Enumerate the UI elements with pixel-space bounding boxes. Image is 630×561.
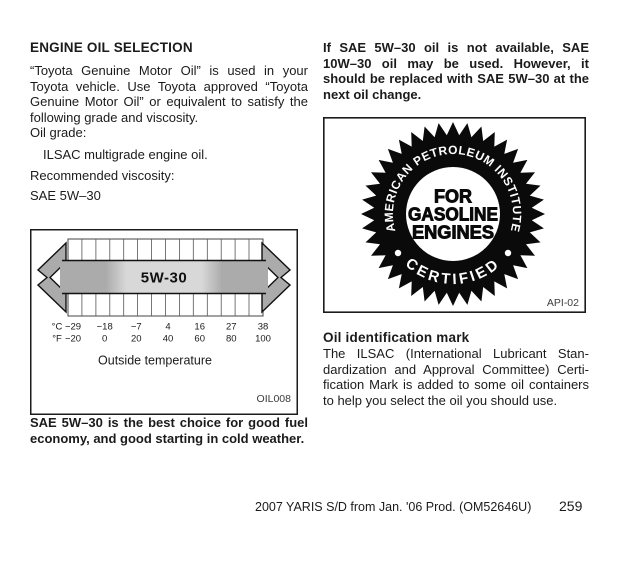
celsius-tick: 38 [258,322,269,333]
fahrenheit-tick: 100 [255,334,271,345]
oil-mark-paragraph: The ILSAC (International Lubricant Stan­… [323,346,589,408]
fahrenheit-prefix: °F [52,334,62,345]
celsius-tick: −7 [131,322,142,333]
seal-line-gasoline: GASOLINE [408,205,498,225]
seal-line-for: FOR [434,187,472,207]
fahrenheit-tick: 40 [163,334,174,345]
fahrenheit-tick: −20 [65,334,81,345]
footer-model-text: 2007 YARIS S/D from Jan. '06 Prod. (OM52… [255,500,531,514]
celsius-tick: 4 [165,322,170,333]
left-column: ENGINE OIL SELECTION “Toyota Genuine Mot… [30,40,308,446]
viscosity-label: Recommended viscosity: [30,168,308,184]
figure-code: OIL008 [257,393,292,405]
seal-dot-right [505,250,511,256]
arrow-label: 5W-30 [141,270,187,287]
alternative-oil-paragraph: If SAE 5W–30 oil is not available, SAE 1… [323,40,589,102]
note-paragraph: SAE 5W–30 is the best choice for good fu… [30,415,308,446]
celsius-tick: 16 [194,322,205,333]
celsius-tick: 27 [226,322,237,333]
fahrenheit-tick: 60 [194,334,205,345]
intro-paragraph: “Toyota Genuine Motor Oil” is used in yo… [30,63,308,125]
figure-caption: Outside temperature [98,354,212,368]
section-heading: ENGINE OIL SELECTION [30,40,308,56]
page-footer: 2007 YARIS S/D from Jan. '06 Prod. (OM52… [0,498,630,520]
celsius-prefix: °C [52,322,63,333]
fahrenheit-tick: 80 [226,334,237,345]
right-column: If SAE 5W–30 oil is not available, SAE 1… [323,40,589,408]
api-certification-seal: AMERICAN PETROLEUM INSTITUTE CERTIFIED F… [323,117,586,313]
celsius-tick: −29 [65,322,81,333]
fahrenheit-tick: 20 [131,334,142,345]
viscosity-value: SAE 5W–30 [30,188,308,204]
manual-page: ENGINE OIL SELECTION “Toyota Genuine Mot… [0,0,630,561]
page-number: 259 [559,498,582,514]
viscosity-diagram: 5W-30 °C −29 −18 −7 4 16 27 38 °F −20 0 … [30,229,298,415]
seal-dot-left [395,250,401,256]
celsius-tick: −18 [97,322,113,333]
oil-grade-label: Oil grade: [30,125,308,141]
oil-mark-heading: Oil identification mark [323,330,589,346]
oil-grade-value: ILSAC multigrade engine oil. [30,147,308,163]
viscosity-diagram-figure: 5W-30 °C −29 −18 −7 4 16 27 38 °F −20 0 … [30,229,298,415]
fahrenheit-tick: 0 [102,334,107,345]
figure-code: API-02 [547,297,579,309]
seal-line-engines: ENGINES [412,223,494,243]
api-seal-figure: AMERICAN PETROLEUM INSTITUTE CERTIFIED F… [323,117,586,313]
